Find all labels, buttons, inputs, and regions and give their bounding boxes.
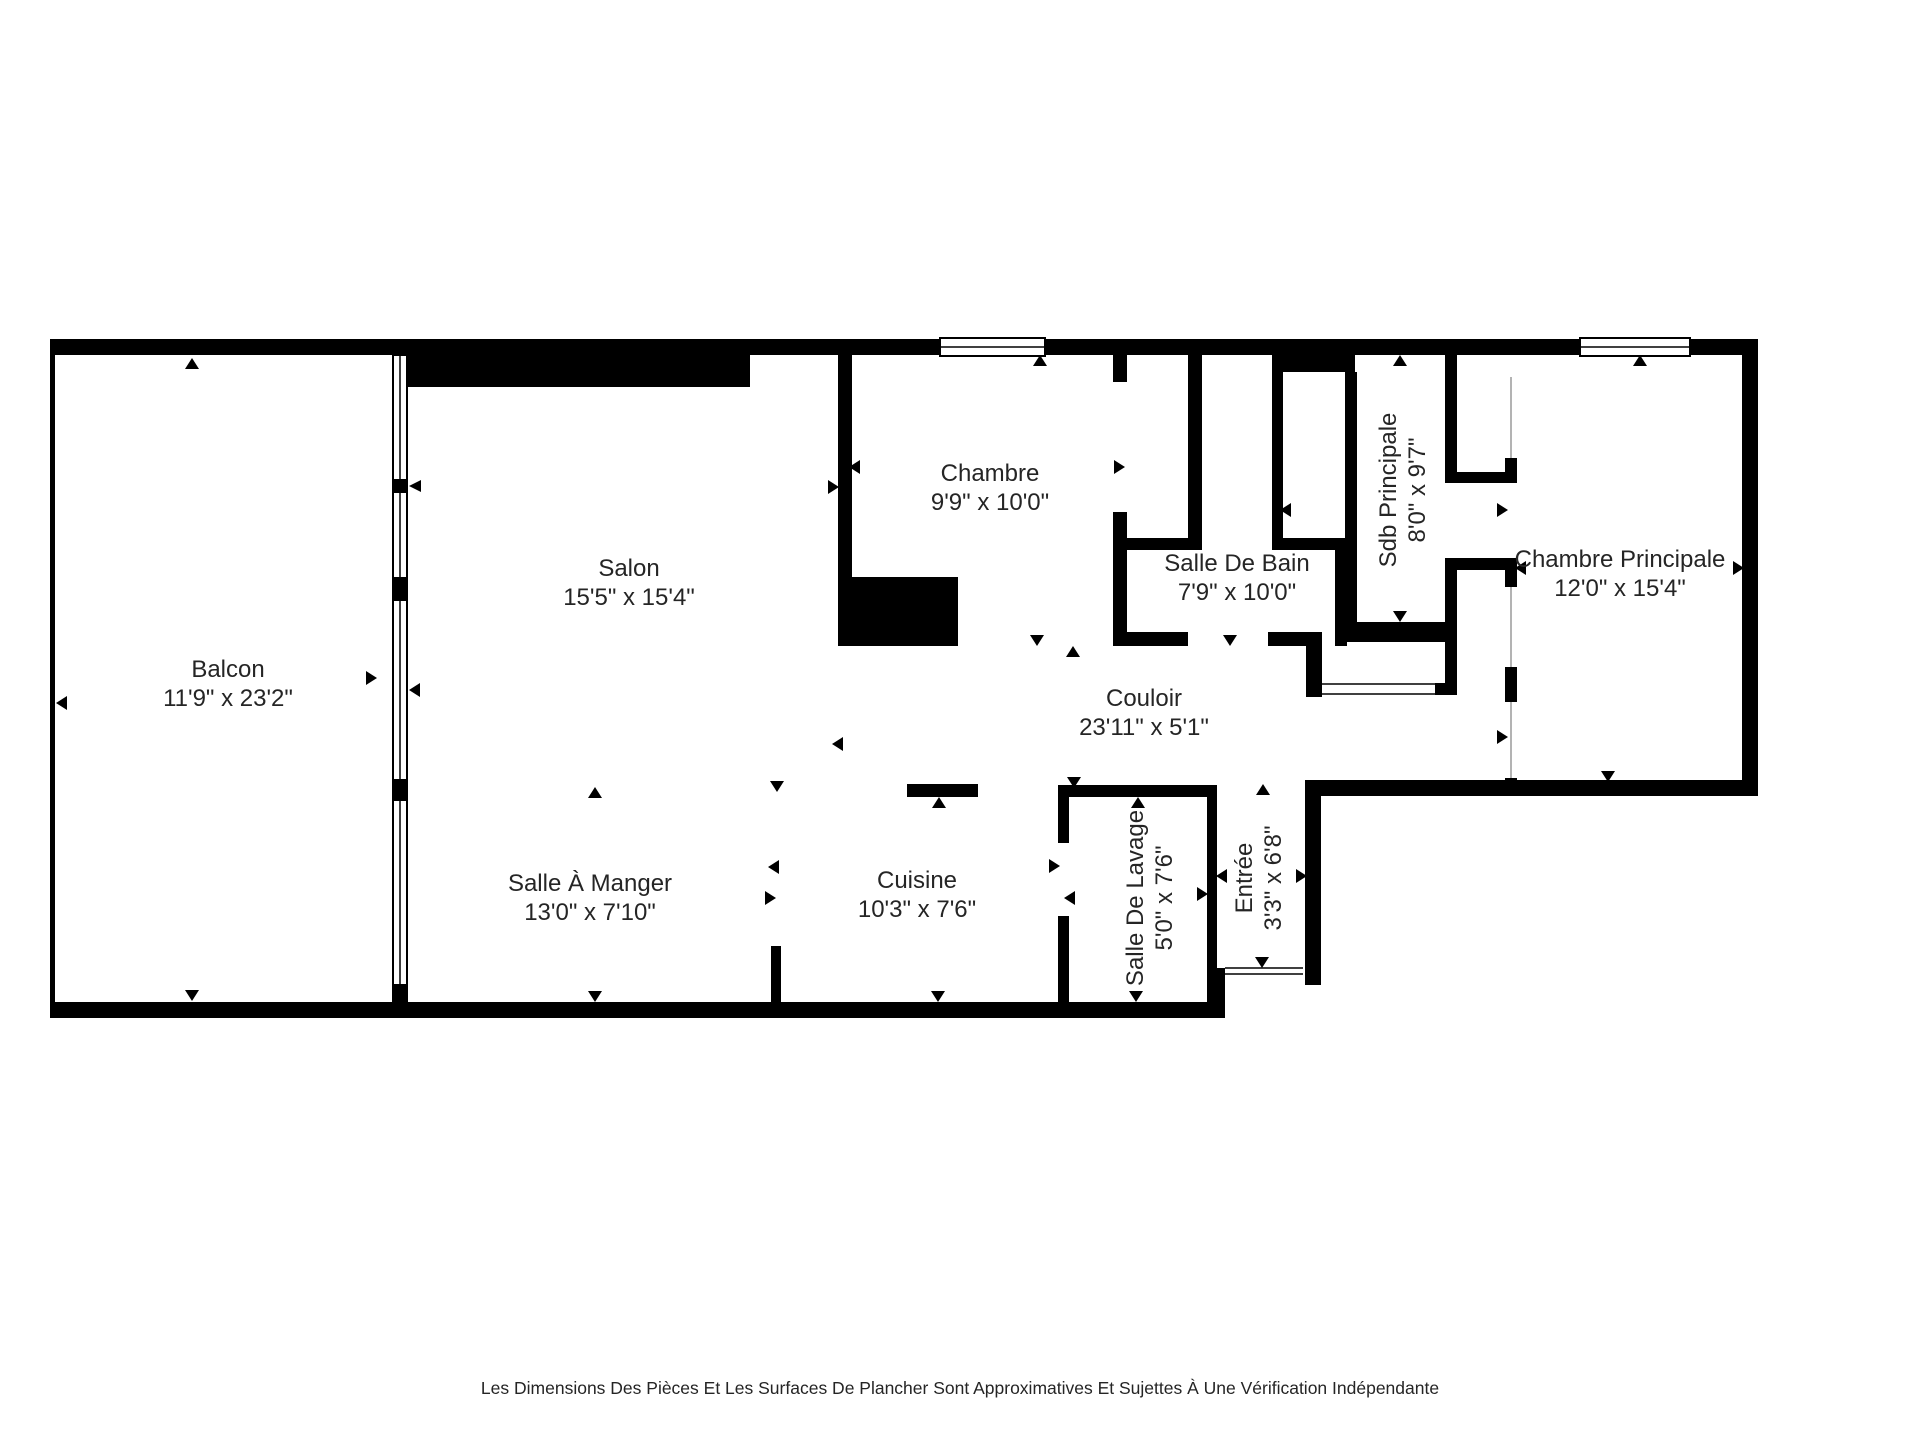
tick-arrow-down-icon <box>770 781 784 792</box>
floorplan-page: Balcon11'9" x 23'2"Salon15'5" x 15'4"Sal… <box>0 0 1920 1440</box>
room-label-couloir: Couloir23'11" x 5'1" <box>1079 685 1209 741</box>
tick-arrow-left-icon <box>768 860 779 874</box>
room-name-chambre: Chambre <box>941 460 1040 487</box>
room-label-sdb-principale: Sdb Principale8'0" x 9'7" <box>1375 413 1431 568</box>
tick-arrow-up-icon <box>1131 797 1145 808</box>
window-chambre-icon <box>940 338 1045 356</box>
tick-arrow-left-icon <box>56 696 67 710</box>
tick-arrow-up-icon <box>588 787 602 798</box>
tick-arrow-down-icon <box>1223 635 1237 646</box>
tick-arrow-right-icon <box>1197 887 1208 901</box>
tick-arrow-up-icon <box>1393 355 1407 366</box>
tick-arrow-right-icon <box>765 891 776 905</box>
room-dims-salle-de-bain: 7'9" x 10'0" <box>1178 579 1296 606</box>
room-label-salon: Salon15'5" x 15'4" <box>563 555 695 611</box>
tick-arrow-up-icon <box>1066 646 1080 657</box>
tick-arrow-left-icon <box>1216 869 1227 883</box>
sliding-door-arrow-icon <box>409 480 421 492</box>
tick-arrow-right-icon <box>1497 503 1508 517</box>
tick-arrow-up-icon <box>1256 784 1270 795</box>
room-name-salle-de-bain: Salle De Bain <box>1164 550 1309 577</box>
tick-arrow-down-icon <box>1030 635 1044 646</box>
room-name-salle-de-lavage: Salle De Lavage <box>1122 810 1149 986</box>
room-dims-salon: 15'5" x 15'4" <box>563 584 695 611</box>
room-dims-balcon: 11'9" x 23'2" <box>163 685 293 712</box>
room-dims-chambre-principale: 12'0" x 15'4" <box>1554 575 1686 602</box>
room-dims-entree: 3'3" x 6'8" <box>1260 826 1287 931</box>
room-dims-salle-a-manger: 13'0" x 7'10" <box>524 899 656 926</box>
tick-arrow-down-icon <box>1255 957 1269 968</box>
tick-arrow-up-icon <box>185 358 199 369</box>
tick-arrow-right-icon <box>1497 730 1508 744</box>
room-dims-cuisine: 10'3" x 7'6" <box>858 896 976 923</box>
room-name-couloir: Couloir <box>1106 685 1182 712</box>
balcony-window-wall-icon <box>393 355 421 985</box>
window-chambre-principale-icon <box>1580 338 1690 356</box>
tick-arrow-left-icon <box>832 737 843 751</box>
room-name-balcon: Balcon <box>191 656 264 683</box>
room-name-cuisine: Cuisine <box>877 867 957 894</box>
room-dims-salle-de-lavage: 5'0" x 7'6" <box>1151 846 1178 951</box>
tick-arrow-down-icon <box>931 991 945 1002</box>
tick-arrow-left-icon <box>1064 891 1075 905</box>
tick-arrow-up-icon <box>932 797 946 808</box>
tick-arrow-down-icon <box>588 991 602 1002</box>
room-dims-sdb-principale: 8'0" x 9'7" <box>1404 438 1431 543</box>
room-name-chambre-principale: Chambre Principale <box>1515 546 1726 573</box>
room-name-salle-a-manger: Salle À Manger <box>508 870 672 897</box>
room-dims-chambre: 9'9" x 10'0" <box>931 489 1049 516</box>
room-name-salon: Salon <box>598 555 659 582</box>
tick-arrow-right-icon <box>828 480 839 494</box>
floor-plan-svg: Balcon11'9" x 23'2"Salon15'5" x 15'4"Sal… <box>0 0 1920 1440</box>
room-label-cuisine: Cuisine10'3" x 7'6" <box>858 867 976 923</box>
disclaimer-text: Les Dimensions Des Pièces Et Les Surface… <box>0 1378 1920 1399</box>
tick-arrow-left-icon <box>409 683 420 697</box>
room-label-salle-de-bain: Salle De Bain7'9" x 10'0" <box>1164 550 1309 606</box>
room-label-balcon: Balcon11'9" x 23'2" <box>163 656 293 712</box>
room-label-salle-de-lavage: Salle De Lavage5'0" x 7'6" <box>1122 810 1178 986</box>
tick-arrow-right-icon <box>1114 460 1125 474</box>
room-label-chambre: Chambre9'9" x 10'0" <box>931 460 1049 516</box>
room-name-sdb-principale: Sdb Principale <box>1375 413 1402 568</box>
tick-arrow-down-icon <box>1129 991 1143 1002</box>
room-label-salle-a-manger: Salle À Manger13'0" x 7'10" <box>508 870 672 926</box>
tick-arrow-right-icon <box>1049 859 1060 873</box>
tick-arrow-down-icon <box>185 990 199 1001</box>
room-label-entree: Entrée3'3" x 6'8" <box>1231 826 1287 931</box>
room-dims-couloir: 23'11" x 5'1" <box>1079 714 1209 741</box>
room-name-entree: Entrée <box>1231 843 1258 914</box>
tick-arrow-right-icon <box>366 671 377 685</box>
linen-closet-doors-icon <box>1322 684 1435 694</box>
entry-door-icon <box>1225 968 1303 974</box>
room-label-chambre-principale: Chambre Principale12'0" x 15'4" <box>1515 546 1726 602</box>
tick-arrow-down-icon <box>1393 611 1407 622</box>
